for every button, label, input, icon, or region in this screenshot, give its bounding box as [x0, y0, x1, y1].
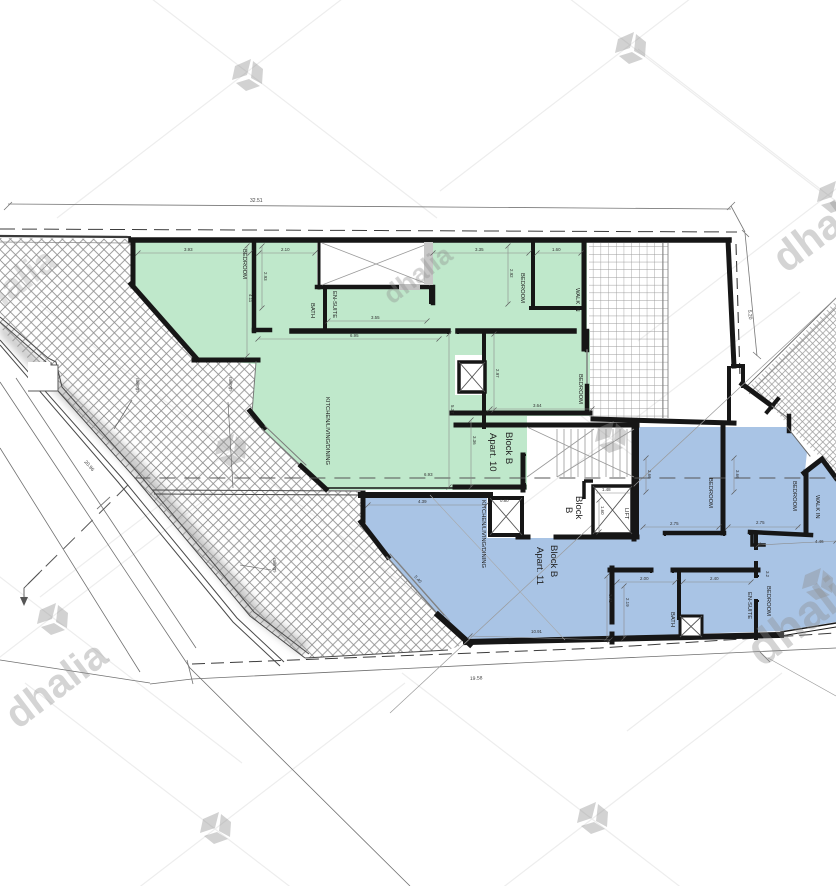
svg-text:3.55: 3.55	[371, 315, 380, 320]
svg-text:BEDROOM: BEDROOM	[519, 273, 525, 303]
svg-text:BATH: BATH	[309, 303, 315, 318]
svg-text:3.66: 3.66	[647, 470, 652, 479]
svg-text:2.93: 2.93	[263, 272, 268, 281]
svg-text:LIFT: LIFT	[623, 508, 629, 520]
svg-text:6.95: 6.95	[350, 333, 359, 338]
svg-text:5.20: 5.20	[746, 310, 753, 321]
svg-text:Apart. 11: Apart. 11	[534, 547, 545, 585]
svg-text:Apart. 10: Apart. 10	[487, 433, 498, 472]
svg-text:2.10: 2.10	[281, 247, 290, 252]
svg-text:2.92: 2.92	[509, 269, 514, 278]
svg-text:EN-SUITE: EN-SUITE	[746, 592, 752, 619]
svg-text:WALK IN: WALK IN	[574, 288, 580, 312]
svg-text:4.39: 4.39	[418, 499, 427, 504]
svg-text:KITCHEN/LIVING/DINING: KITCHEN/LIVING/DINING	[324, 397, 330, 465]
svg-text:BEDROOM: BEDROOM	[707, 478, 713, 508]
svg-text:2.00: 2.00	[640, 576, 649, 581]
svg-text:railings: railings	[135, 378, 141, 393]
svg-text:32.51: 32.51	[250, 198, 263, 204]
svg-text:B: B	[563, 507, 574, 513]
svg-text:Block B: Block B	[503, 432, 514, 464]
svg-text:railings: railings	[272, 558, 278, 573]
svg-text:3.66: 3.66	[735, 470, 740, 479]
svg-text:6.93: 6.93	[424, 472, 433, 477]
svg-text:3.35: 3.35	[475, 247, 484, 252]
svg-text:2.97: 2.97	[495, 369, 500, 378]
svg-text:EN-SUITE: EN-SUITE	[331, 291, 337, 318]
svg-text:3.2: 3.2	[765, 571, 770, 578]
svg-text:Block B: Block B	[548, 545, 559, 577]
svg-text:2.19: 2.19	[625, 598, 630, 607]
svg-text:2.75: 2.75	[756, 520, 765, 525]
svg-text:5.37: 5.37	[450, 405, 455, 414]
svg-text:3.36: 3.36	[472, 436, 477, 445]
svg-text:2.75: 2.75	[670, 521, 679, 526]
svg-text:1.48: 1.48	[602, 487, 611, 492]
svg-text:1.60: 1.60	[600, 506, 605, 515]
svg-text:WALK IN: WALK IN	[814, 495, 820, 519]
svg-text:0.80: 0.80	[500, 498, 509, 503]
svg-text:4.46: 4.46	[815, 539, 824, 544]
svg-text:BEDROOM: BEDROOM	[791, 481, 797, 511]
svg-text:10.91: 10.91	[531, 629, 543, 634]
svg-text:1.60: 1.60	[552, 247, 561, 252]
svg-text:BEDROOM: BEDROOM	[241, 249, 247, 279]
svg-text:BEDROOM: BEDROOM	[577, 374, 583, 404]
svg-text:BATH: BATH	[669, 612, 675, 627]
svg-text:4.11: 4.11	[248, 294, 253, 303]
svg-text:railings: railings	[228, 377, 234, 392]
svg-text:3.93: 3.93	[184, 247, 193, 252]
svg-text:KITCHEN/LIVING/DINING: KITCHEN/LIVING/DINING	[480, 500, 486, 568]
svg-text:19.58: 19.58	[470, 675, 483, 682]
svg-text:3.41: 3.41	[608, 594, 613, 603]
svg-text:3.64: 3.64	[533, 403, 542, 408]
svg-text:2.40: 2.40	[710, 576, 719, 581]
